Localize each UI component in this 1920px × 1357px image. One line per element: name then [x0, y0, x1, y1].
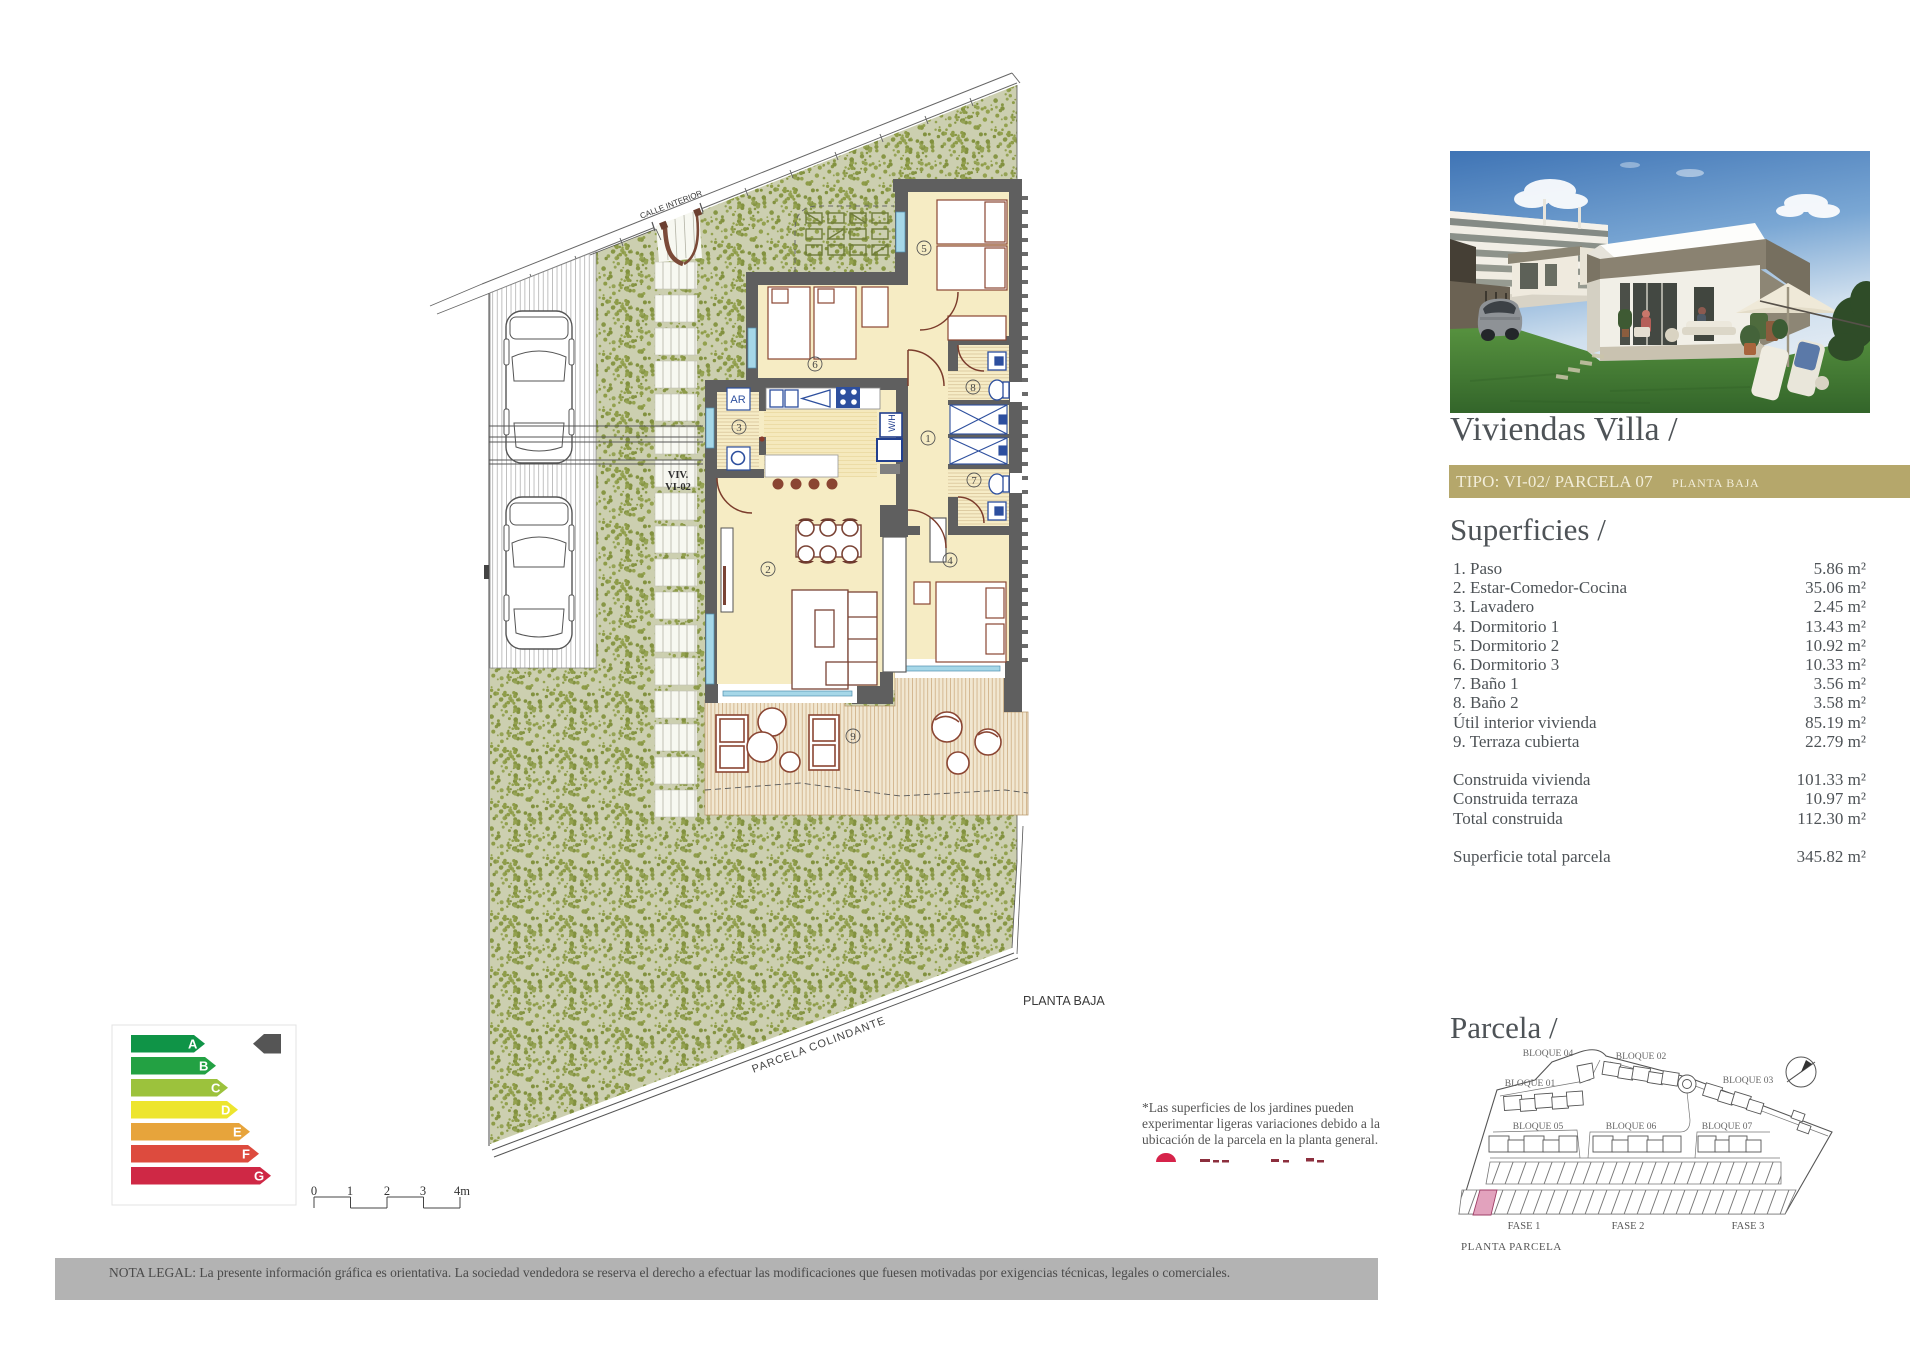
svg-text:VIV.: VIV.	[668, 470, 689, 481]
svg-text:C: C	[211, 1081, 221, 1096]
svg-text:BLOQUE 07: BLOQUE 07	[1702, 1122, 1753, 1132]
svg-text:1: 1	[925, 433, 931, 445]
svg-text:FASE 1: FASE 1	[1508, 1221, 1541, 1232]
svg-text:A: A	[188, 1037, 198, 1052]
svg-text:BLOQUE 06: BLOQUE 06	[1606, 1122, 1657, 1132]
svg-text:BLOQUE 03: BLOQUE 03	[1723, 1076, 1774, 1086]
svg-text:2: 2	[765, 564, 771, 576]
svg-text:VI-02: VI-02	[665, 482, 691, 493]
svg-text:8: 8	[970, 382, 976, 394]
svg-text:4m: 4m	[454, 1184, 470, 1198]
svg-text:G: G	[254, 1169, 264, 1184]
svg-text:5: 5	[921, 243, 927, 255]
svg-text:BLOQUE 05: BLOQUE 05	[1513, 1122, 1564, 1132]
svg-text:D: D	[221, 1103, 230, 1118]
svg-text:3: 3	[736, 422, 742, 434]
svg-text:BLOQUE 01: BLOQUE 01	[1505, 1079, 1556, 1089]
svg-text:3: 3	[420, 1184, 426, 1198]
svg-text:6: 6	[812, 359, 818, 371]
svg-text:BLOQUE 04: BLOQUE 04	[1523, 1049, 1574, 1059]
svg-text:2: 2	[384, 1184, 390, 1198]
svg-text:PLANTA PARCELA: PLANTA PARCELA	[1461, 1241, 1562, 1253]
svg-text:E: E	[233, 1125, 242, 1140]
svg-text:ubicación de la parcela en la: ubicación de la parcela en la planta gen…	[1142, 1132, 1378, 1147]
svg-text:0: 0	[311, 1184, 317, 1198]
svg-text:FASE 2: FASE 2	[1612, 1221, 1645, 1232]
svg-text:9: 9	[850, 731, 856, 743]
svg-text:*Las superficies de los jardin: *Las superficies de los jardines pueden	[1142, 1100, 1354, 1115]
svg-text:W/H: W/H	[887, 414, 897, 432]
svg-text:BLOQUE 02: BLOQUE 02	[1616, 1052, 1667, 1062]
svg-text:1: 1	[347, 1184, 353, 1198]
svg-text:F: F	[242, 1147, 250, 1162]
svg-text:7: 7	[971, 475, 977, 487]
svg-text:4: 4	[947, 555, 953, 567]
svg-text:FASE 3: FASE 3	[1732, 1221, 1765, 1232]
svg-text:AR: AR	[730, 394, 745, 406]
svg-text:PLANTA BAJA: PLANTA BAJA	[1023, 994, 1105, 1008]
svg-text:B: B	[199, 1059, 208, 1074]
svg-text:experimentar ligeras variacion: experimentar ligeras variaciones debido …	[1142, 1116, 1380, 1131]
